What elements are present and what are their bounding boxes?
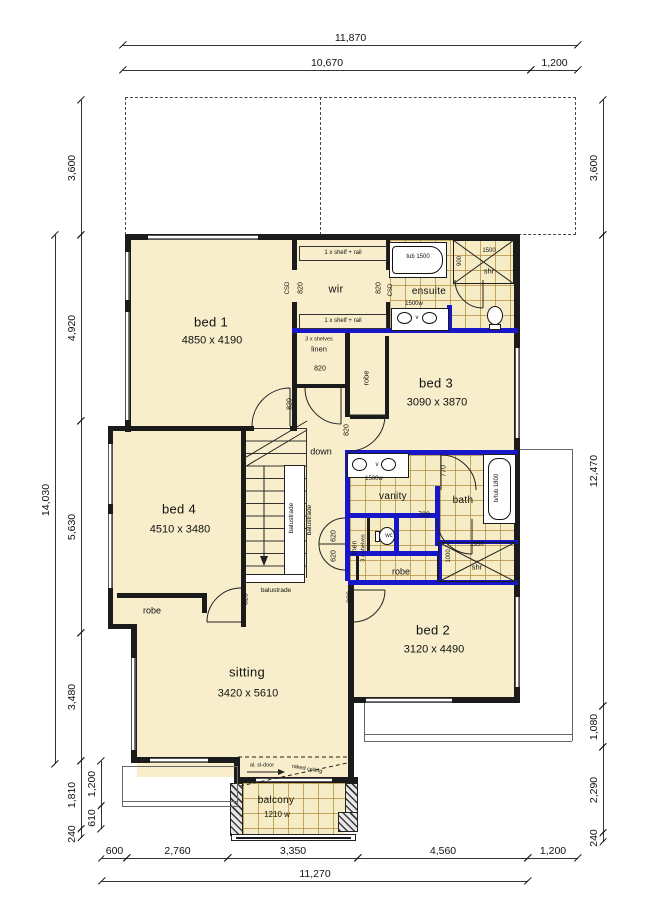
- dim-label: 5,630: [67, 512, 78, 542]
- dim-line-v: [603, 706, 604, 747]
- dim-line-v: [81, 633, 82, 761]
- dim-line-h: [528, 858, 578, 859]
- floor-plan-drawing: bed 14850 x 4190wirensuitebed 33090 x 38…: [0, 0, 652, 917]
- dim-line-v: [81, 100, 82, 235]
- dim-label: 1,200: [538, 846, 568, 857]
- dim-tick: [524, 877, 532, 885]
- dim-label: 1,200: [539, 58, 569, 69]
- dim-label: 11,870: [333, 33, 368, 44]
- dim-tick: [97, 825, 105, 833]
- dim-label: 12,470: [589, 452, 600, 488]
- dim-label: 10,670: [309, 58, 345, 69]
- dim-tick: [77, 834, 85, 842]
- dim-tick: [574, 41, 582, 49]
- dim-line-h: [531, 70, 578, 71]
- dim-line-h: [123, 70, 531, 71]
- dim-label: 240: [589, 827, 600, 849]
- dim-line-h: [358, 858, 528, 859]
- dim-label: 11,270: [297, 869, 332, 880]
- dim-line-v: [81, 235, 82, 421]
- dim-label: 4,920: [67, 313, 78, 343]
- dim-label: 1,810: [67, 780, 78, 810]
- dim-line-v: [55, 235, 56, 764]
- dim-line-h: [228, 858, 358, 859]
- dim-line-v: [603, 100, 604, 235]
- dim-label: 3,600: [67, 152, 78, 182]
- dim-label: 2,760: [162, 846, 192, 857]
- dim-tick: [599, 838, 607, 846]
- dim-line-v: [101, 761, 102, 806]
- dim-tick: [574, 66, 582, 74]
- dim-label: 2,290: [589, 775, 600, 805]
- dim-line-v: [603, 747, 604, 833]
- dim-label: 610: [87, 807, 98, 829]
- dim-label: 240: [67, 823, 78, 845]
- dim-label: 600: [104, 846, 126, 857]
- dim-label: 1,080: [589, 711, 600, 741]
- dim-label: 3,350: [278, 846, 308, 857]
- dim-line-v: [603, 235, 604, 706]
- dim-line-h: [127, 858, 228, 859]
- dim-line-h: [102, 881, 528, 882]
- dim-line-v: [81, 421, 82, 633]
- dim-label: 3,480: [67, 682, 78, 712]
- dim-tick: [51, 760, 59, 768]
- dim-line-v: [81, 761, 82, 829]
- dim-label: 3,600: [589, 152, 600, 182]
- dim-label: 14,030: [41, 481, 52, 517]
- dim-tick: [574, 854, 582, 862]
- dim-label: 1,200: [87, 768, 98, 798]
- dim-label: 4,560: [428, 846, 458, 857]
- dim-line-h: [123, 45, 578, 46]
- dimension-layer: 11,87010,6701,2006002,7603,3504,5601,200…: [0, 0, 652, 917]
